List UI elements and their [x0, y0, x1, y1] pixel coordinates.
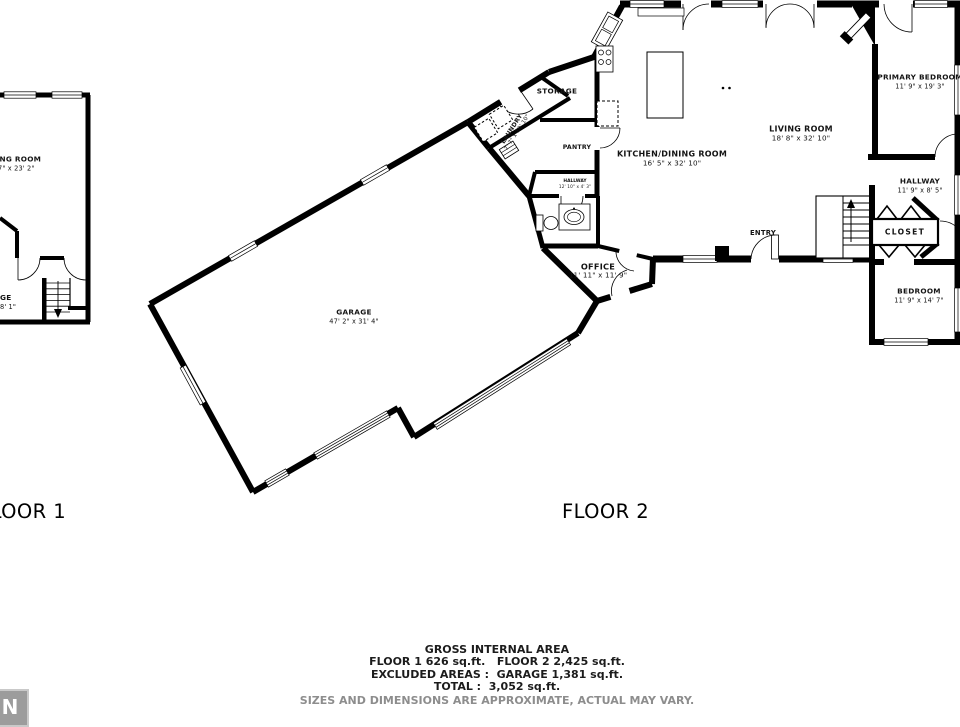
room-name: GE	[0, 294, 16, 303]
room-label-pantry: PANTRY	[563, 144, 592, 152]
fridge-icon	[597, 101, 618, 126]
stove-icon	[596, 46, 613, 72]
room-name: PRIMARY BEDROOM	[877, 74, 960, 83]
kitchen-fixtures	[591, 8, 730, 126]
top-wall	[620, 0, 960, 46]
room-dims: 8' 1"	[0, 303, 16, 311]
column	[722, 87, 725, 90]
room-dims: 18' 8" x 32' 10"	[769, 134, 833, 143]
summary-total: TOTAL : 3,052 sq.ft.	[300, 681, 694, 693]
room-name: CLOSET	[885, 227, 925, 236]
room-name: STORAGE	[537, 88, 577, 97]
garage-window	[228, 241, 257, 262]
room-dims: 12' 10" x 4' 3"	[559, 184, 591, 189]
column	[728, 87, 731, 90]
right-window	[955, 175, 960, 215]
toilet-icon	[536, 215, 558, 231]
room-label-bedroom: BEDROOM 11' 9" x 14' 7"	[894, 288, 943, 305]
room-name: BEDROOM	[894, 288, 943, 297]
floor1-window	[4, 92, 36, 98]
hanger-symbol	[901, 206, 921, 219]
hanger-symbol	[877, 206, 897, 219]
area-summary: GROSS INTERNAL AREA FLOOR 1 626 sq.ft. F…	[300, 644, 694, 707]
room-label-hallway: HALLWAY 11' 9" x 8' 5"	[897, 178, 942, 195]
garage-door	[265, 469, 289, 487]
stairs	[816, 196, 870, 258]
floorplan-drawing	[0, 0, 960, 720]
summary-disclaimer: SIZES AND DIMENSIONS ARE APPROXIMATE, AC…	[300, 695, 694, 707]
floor2-title: FLOOR 2	[562, 500, 649, 523]
room-label-entry: ENTRY	[750, 229, 776, 237]
north-label: N	[0, 691, 27, 724]
floor1-stairs	[46, 278, 70, 320]
room-label-office: OFFICE 11' 11" x 11' 9"	[569, 262, 627, 281]
entry-pillar	[715, 246, 729, 261]
sink-icon	[559, 204, 590, 230]
room-label-floor1-partial: GE 8' 1"	[0, 294, 16, 311]
right-window	[955, 288, 960, 332]
floor1-walls	[0, 92, 90, 322]
floor1-doors	[18, 258, 86, 280]
stairs-down-arrow	[54, 309, 62, 318]
garage-walls	[150, 122, 597, 492]
room-dims: 9' 7" x 23' 2"	[0, 164, 41, 172]
laundry-door-gap	[499, 87, 522, 105]
room-dims: 11' 9" x 19' 3"	[877, 82, 960, 90]
room-name: LIVING ROOM	[0, 156, 41, 165]
room-dims: 16' 5" x 32' 10"	[617, 159, 727, 168]
entry-window	[683, 256, 717, 263]
room-name: PANTRY	[563, 144, 592, 152]
floor1-title: FLOOR 1	[0, 500, 66, 523]
room-dims: 11' 9" x 8' 5"	[897, 186, 942, 194]
floor1-window	[52, 92, 82, 98]
room-dims: 11' 9" x 14' 7"	[894, 296, 943, 304]
hanger-symbol	[879, 245, 899, 257]
garage-window	[360, 165, 389, 186]
room-label-kitchen-dining: KITCHEN/DINING ROOM 16' 5" x 32' 10"	[617, 150, 727, 169]
garage-window	[180, 365, 206, 405]
room-dims: 47' 2" x 31' 4"	[329, 317, 378, 325]
room-label-hallway-small: HALLWAY 12' 10" x 4' 3"	[559, 179, 591, 190]
summary-floor-areas: FLOOR 1 626 sq.ft. FLOOR 2 2,425 sq.ft.	[300, 656, 694, 668]
counter	[638, 8, 684, 16]
floorplan-canvas: LIVING ROOM 9' 7" x 23' 2" GE 8' 1" GARA…	[0, 0, 960, 720]
room-name: ENTRY	[750, 229, 776, 237]
garage-door	[433, 339, 570, 430]
north-compass: N	[0, 689, 29, 727]
room-name: GARAGE	[329, 309, 378, 318]
garage-door	[314, 411, 390, 459]
room-label-primary-bedroom: PRIMARY BEDROOM 11' 9" x 19' 3"	[877, 74, 960, 91]
entry-door-leaf	[772, 235, 779, 259]
room-label-storage: STORAGE	[537, 88, 577, 97]
top-window	[630, 1, 664, 8]
top-window	[915, 1, 948, 8]
bedroom-window	[884, 339, 928, 346]
kitchen-island	[647, 52, 683, 118]
room-name: HALLWAY	[897, 178, 942, 187]
room-label-floor1-living: LIVING ROOM 9' 7" x 23' 2"	[0, 156, 41, 173]
top-window	[722, 1, 758, 8]
room-dims: 11' 11" x 11' 9"	[569, 272, 627, 281]
room-label-living: LIVING ROOM 18' 8" x 32' 10"	[769, 125, 833, 144]
room-label-closet: CLOSET	[885, 227, 925, 236]
corner-sink-icon	[591, 12, 622, 50]
room-label-garage: GARAGE 47' 2" x 31' 4"	[329, 309, 378, 326]
